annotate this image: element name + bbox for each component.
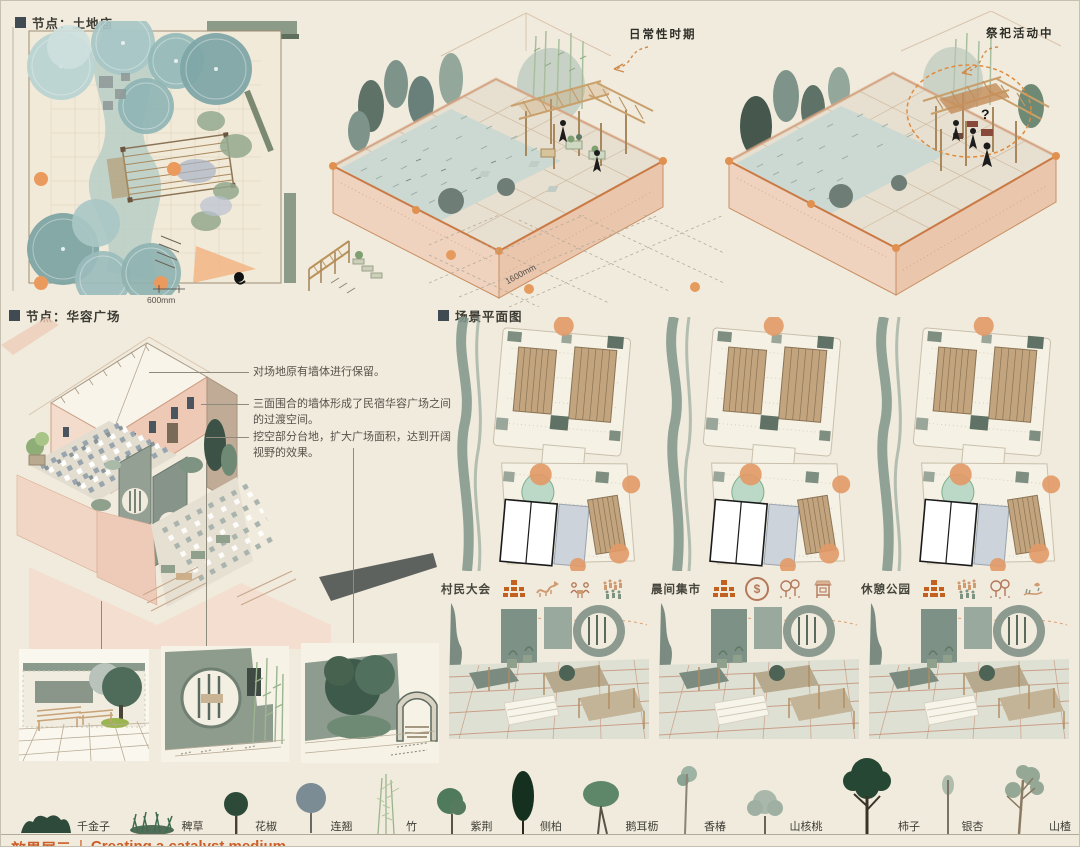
scene-label-park: 休憩公园 — [861, 581, 911, 597]
tree-silhouette-icon — [435, 786, 467, 834]
columnar-tree-silhouette-icon — [938, 774, 958, 834]
legend-item: 花椒 — [221, 790, 277, 834]
legend-item: 鹅耳枥 — [580, 778, 659, 834]
dashed-arrow-icon — [946, 43, 1006, 91]
shrub-silhouette-icon — [19, 808, 73, 834]
park-trees-icon — [988, 577, 1012, 601]
legend-item: 稗草 — [128, 806, 204, 834]
assembly-icon — [712, 577, 736, 601]
park-trees-icon — [778, 577, 802, 601]
assembly-icon — [502, 577, 526, 601]
tall-tree-silhouette-icon — [676, 762, 700, 834]
axon-ritual — [701, 11, 1080, 306]
annotation-leader — [206, 437, 249, 438]
vignette-leader — [101, 601, 102, 651]
scene-row-park: 休憩公园 — [861, 577, 1045, 601]
legend-item: 银杏 — [938, 774, 984, 834]
annotation-2: 三面围合的墙体形成了民宿华容广场之间的过渡空间。 — [253, 396, 451, 428]
footer-en: Creating a catalyst medium — [91, 838, 286, 847]
scene-plan-1 — [449, 317, 649, 571]
legend-item: 千金子 — [19, 808, 110, 834]
spreading-tree-silhouette-icon — [580, 778, 622, 834]
vignette-benches — [19, 649, 149, 761]
dark-tree-silhouette-icon — [510, 770, 536, 834]
vignette-leader — [353, 448, 354, 646]
crowd-icon — [601, 577, 625, 601]
render-market — [659, 603, 859, 739]
assembly-icon — [922, 577, 946, 601]
section-marker-icon — [438, 310, 449, 321]
crowd-icon — [955, 577, 979, 601]
detail-pergola — [309, 241, 382, 293]
vignette-tree-arch — [301, 643, 439, 763]
presentation-board: 节点：土地庙 — [0, 0, 1080, 847]
footer-zh: 效果展示 — [11, 838, 71, 847]
light-tree-silhouette-icon — [744, 788, 786, 834]
annotation-leader — [149, 372, 249, 373]
dragon-dance-icon — [535, 577, 559, 601]
footer-divider: | — [79, 838, 83, 847]
page-footer: 效果展示 | Creating a catalyst medium — [11, 838, 286, 847]
ground-grid — [429, 215, 724, 307]
question-mark-label: ? — [981, 106, 990, 122]
vignette-moon-gate — [161, 646, 289, 762]
plant-legend: 千金子 稗草 花椒 连翘 竹 — [19, 746, 1071, 834]
legend-item: 连翘 — [295, 782, 353, 834]
vignette-leader — [206, 461, 207, 649]
round-tree-silhouette-icon — [295, 782, 327, 834]
render-assembly — [449, 603, 649, 739]
legend-item: 山楂 — [1001, 760, 1071, 834]
scene-label-market: 晨间集市 — [651, 581, 701, 597]
axon-daily-label: 日常性时期 — [629, 26, 697, 42]
bottom-rule — [1, 834, 1080, 835]
legend-item: 柿子 — [840, 756, 920, 834]
dashed-arrow-icon — [596, 43, 656, 88]
small-tree-silhouette-icon — [221, 790, 251, 834]
axon-ritual-label: 祭祀活动中 — [986, 25, 1054, 41]
temple-site-plan — [11, 21, 301, 295]
scene-row-assembly: 村民大会 — [441, 577, 625, 601]
bamboo-silhouette-icon — [370, 772, 402, 834]
legend-item: 山核桃 — [744, 788, 823, 834]
legend-item: 竹 — [370, 772, 417, 834]
annotation-3: 挖空部分台地，扩大广场面积，达到开阔视野的效果。 — [253, 429, 451, 461]
legend-item: 侧柏 — [510, 770, 562, 834]
scene-plan-3 — [869, 317, 1069, 571]
pine-tree-silhouette-icon — [1001, 760, 1045, 834]
dimension-600mm: 600mm — [147, 295, 175, 305]
annotation-1: 对场地原有墙体进行保留。 — [253, 364, 451, 380]
scene-label-assembly: 村民大会 — [441, 581, 491, 597]
render-park — [869, 603, 1069, 739]
meeting-icon — [568, 577, 592, 601]
legend-item: 紫荆 — [435, 786, 493, 834]
scene-row-market: 晨间集市 $ — [651, 577, 835, 601]
annotation-leader — [201, 404, 249, 405]
market-stall-icon — [811, 577, 835, 601]
bird-landscape-icon — [1021, 577, 1045, 601]
coin-icon: $ — [745, 577, 769, 601]
grass-silhouette-icon — [128, 806, 178, 834]
big-dark-tree-silhouette-icon — [840, 756, 894, 834]
scene-plan-2 — [659, 317, 859, 571]
coin-symbol: $ — [754, 582, 761, 596]
legend-item: 香椿 — [676, 762, 726, 834]
